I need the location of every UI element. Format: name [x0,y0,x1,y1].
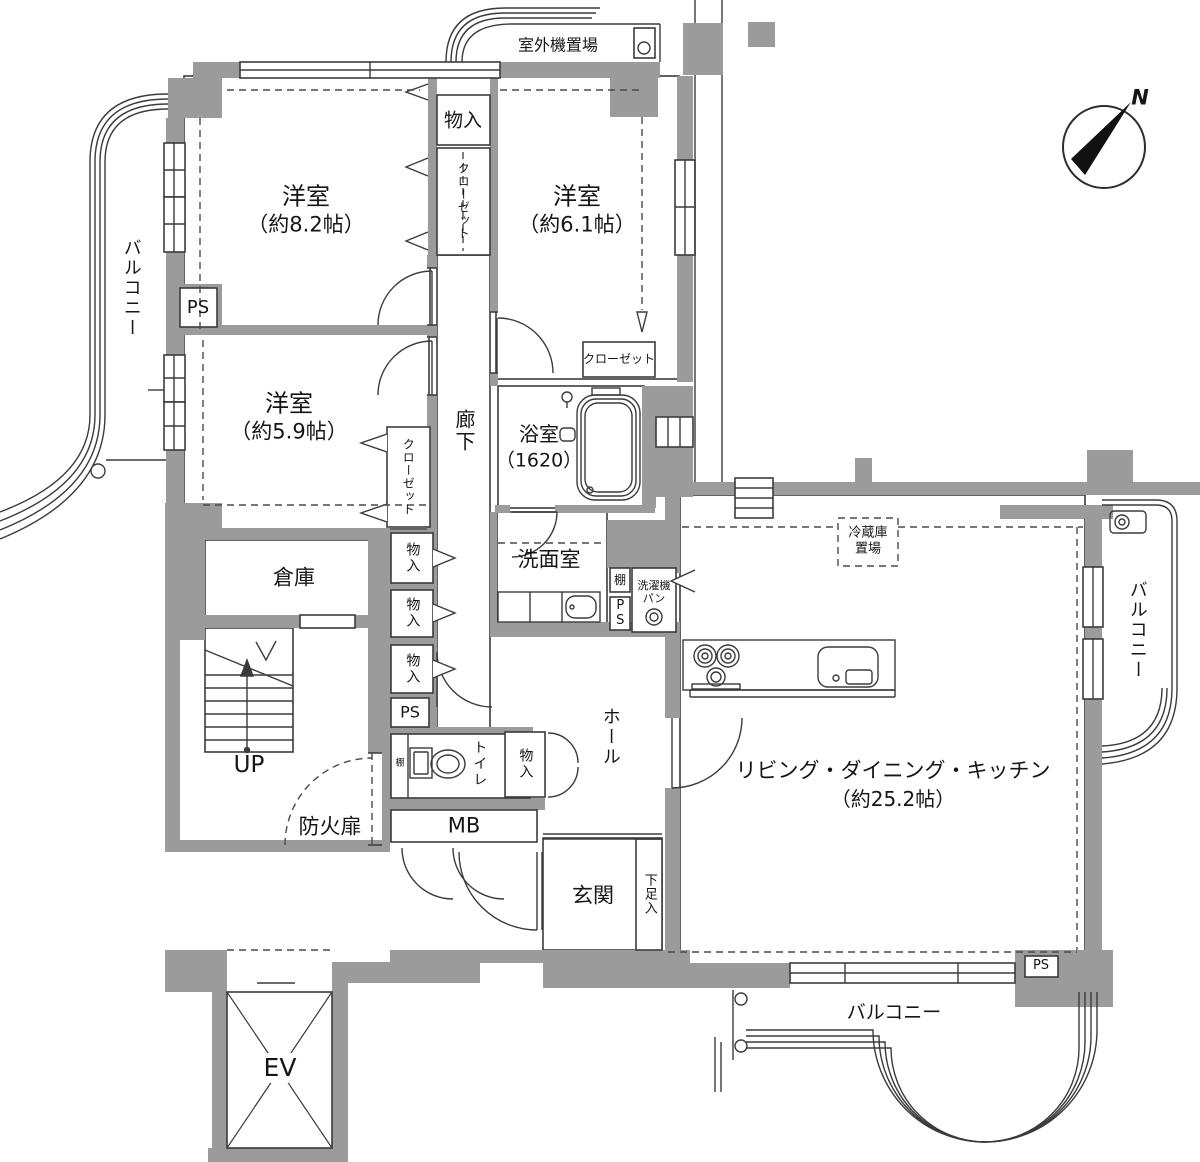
ps-bottom-label: PS [1033,958,1049,974]
ps-mid-label: PS [400,702,420,721]
balcony-bottom-label: バルコニー [847,1002,942,1025]
ps-left-label: PS [187,297,209,319]
ps-washroom-label: PS [612,598,628,628]
mb-label: MB [448,813,481,838]
fridge-space-label: 冷蔵庫置場 [844,525,892,556]
monoire-top-label: 物入 [444,110,482,133]
monoire-2-label: 物入 [404,597,421,629]
corridor-label: 廊下 [452,409,476,453]
fire-door-label: 防火扉 [299,814,362,839]
floorplan: 室外機置場 洋室 （約8.2帖） 洋室 （約6.1帖） 洋室 （約5.9帖） 物… [0,0,1200,1162]
washer-pan-label: 洗濯機パン [634,579,674,605]
bedroom1-name: 洋室 [282,183,330,212]
outdoor-unit-label: 室外機置場 [518,35,598,54]
monoire-1-label: 物入 [404,542,421,574]
compass-icon [1063,102,1145,188]
shelf-toilet-label: 棚 [395,759,404,770]
balcony-right-label: バルコニー [1126,580,1148,680]
washroom-label: 洗面室 [518,547,581,572]
bath-name: 浴室 [519,422,559,446]
balcony-left-label: バルコニー [120,238,142,338]
entrance-label: 玄関 [572,883,614,908]
bedroom1-size: （約8.2帖） [247,212,364,237]
shelf-washroom-label: 棚 [614,573,626,587]
closet-top-label: クローゼット [456,162,470,240]
monoire-hall-label: 物入 [517,748,534,780]
floorplan-drawing [0,0,1200,1162]
bath-size: （1620） [496,450,582,473]
monoire-3-label: 物入 [404,653,421,685]
ldk-name: リビング・ダイニング・キッチン [736,758,1051,783]
elevator-label: EV [261,1053,300,1083]
bedroom3-name: 洋室 [265,390,313,419]
bedroom2-size: （約6.1帖） [518,212,635,237]
up-label: UP [234,752,265,780]
ldk-size: （約25.2帖） [831,787,956,811]
hall-label: ホール [599,707,621,767]
bedroom2-name: 洋室 [553,183,601,212]
bedroom3-size: （約5.9帖） [230,419,347,444]
shoe-box-label: 下足入 [641,873,657,915]
storeroom-label: 倉庫 [273,565,315,590]
compass-north-label: N [1131,85,1149,110]
closet-bedroom3-label: クローゼット [401,438,415,516]
toilet-label: トイレ [471,740,488,788]
closet-bedroom2-label: クローゼット [583,352,655,366]
